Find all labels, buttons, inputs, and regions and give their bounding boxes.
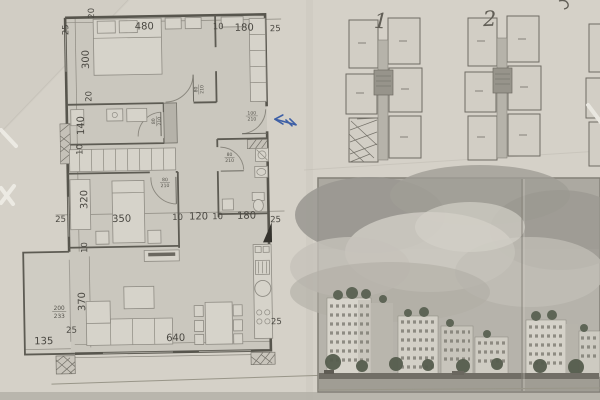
svg-text:210: 210 bbox=[161, 183, 170, 189]
svg-text:210: 210 bbox=[247, 116, 256, 122]
dim-label: 25 bbox=[270, 24, 281, 34]
kitchen-counter bbox=[253, 244, 273, 338]
dim-label: 25 bbox=[271, 317, 282, 327]
dim-label: 320 bbox=[79, 190, 90, 209]
bottom-edge-shadow bbox=[0, 392, 600, 400]
dim-label: 10 bbox=[75, 144, 85, 155]
dim-label: 20 bbox=[84, 91, 94, 102]
stair-corridor bbox=[378, 40, 388, 160]
dim-label: 640 bbox=[166, 333, 185, 344]
svg-text:210: 210 bbox=[225, 158, 234, 164]
dim-label: 25 bbox=[270, 215, 281, 225]
dim-label: 10 bbox=[213, 22, 224, 32]
dim-label: 20 bbox=[87, 8, 97, 19]
svg-text:80: 80 bbox=[227, 152, 233, 158]
dim-label: 135 bbox=[34, 336, 53, 347]
stair-core bbox=[374, 70, 393, 95]
dim-label: 25 bbox=[55, 215, 66, 225]
dim-label: 200 bbox=[54, 306, 65, 312]
building-photo bbox=[290, 165, 600, 392]
svg-text:80: 80 bbox=[151, 118, 157, 124]
handwritten-label-2: 2 bbox=[482, 7, 497, 31]
dim-label: 10 bbox=[172, 213, 183, 223]
tv bbox=[148, 252, 175, 256]
dim-label: 180 bbox=[235, 23, 254, 34]
stair-core bbox=[493, 68, 512, 93]
photographed-document: 20 480 10 180 25 25 300 20 140 10 320 25… bbox=[0, 0, 600, 400]
dim-label: 10 bbox=[80, 242, 90, 253]
svg-text:210: 210 bbox=[199, 85, 205, 94]
dim-label: 233 bbox=[54, 314, 65, 320]
dim-label: 300 bbox=[81, 50, 92, 69]
dim-label: 180 bbox=[237, 211, 256, 222]
dim-label: 120 bbox=[189, 211, 208, 222]
dim-label: 25 bbox=[66, 326, 77, 336]
svg-text:80: 80 bbox=[162, 177, 168, 183]
dim-label: 350 bbox=[112, 214, 131, 225]
stair-corridor bbox=[497, 38, 507, 158]
svg-text:210: 210 bbox=[157, 117, 163, 126]
dim-label: 10 bbox=[212, 212, 223, 222]
dim-label: 25 bbox=[61, 24, 71, 35]
dim-label: 480 bbox=[135, 21, 154, 32]
handwritten-label-1: 1 bbox=[373, 9, 388, 34]
dim-label: 140 bbox=[76, 116, 87, 135]
dim-label: 370 bbox=[77, 292, 88, 311]
svg-text:80: 80 bbox=[193, 86, 199, 92]
